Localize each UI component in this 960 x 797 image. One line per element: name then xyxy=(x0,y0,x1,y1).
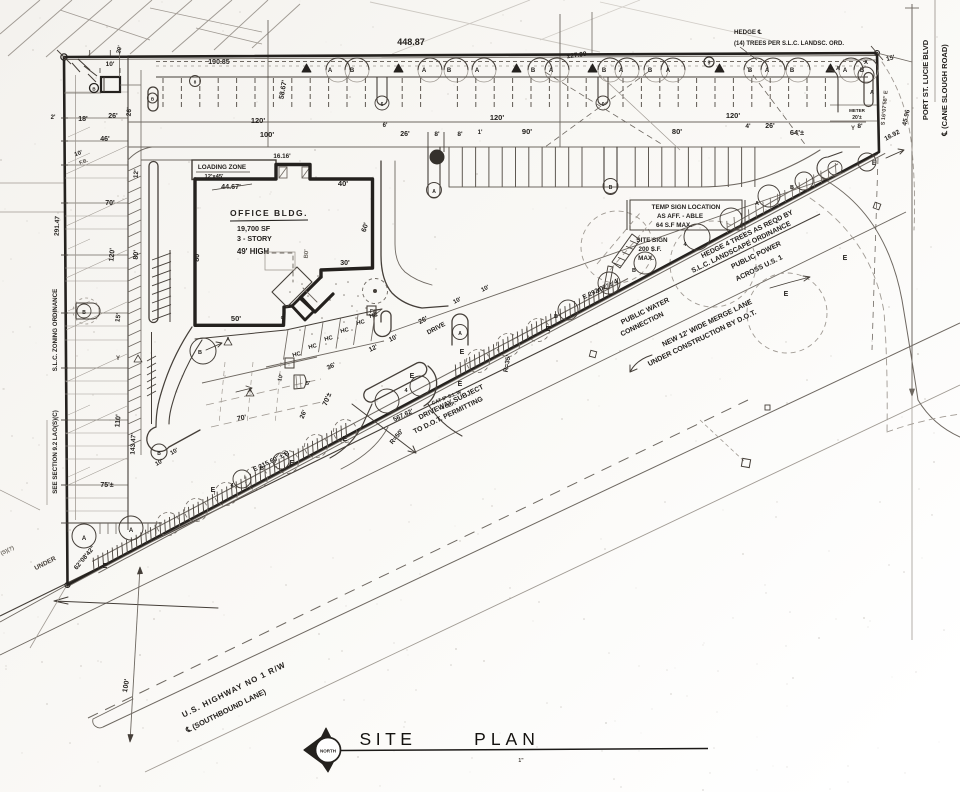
svg-text:B: B xyxy=(157,451,161,457)
svg-text:70': 70' xyxy=(105,200,115,207)
svg-text:MAX.: MAX. xyxy=(638,255,654,262)
svg-text:B: B xyxy=(632,268,636,274)
svg-text:HEDGE ℄: HEDGE ℄ xyxy=(734,29,762,36)
svg-text:1": 1" xyxy=(518,758,524,764)
svg-text:B: B xyxy=(790,68,795,74)
svg-text:18': 18' xyxy=(78,116,88,123)
svg-text:291.47: 291.47 xyxy=(54,216,62,236)
svg-text:E: E xyxy=(460,349,465,356)
svg-text:A: A xyxy=(666,68,671,74)
svg-text:20'±: 20'± xyxy=(852,115,862,121)
svg-text:E: E xyxy=(343,436,348,443)
svg-text:A: A xyxy=(475,68,480,74)
svg-text:E: E xyxy=(843,255,848,262)
svg-text:16.16': 16.16' xyxy=(273,153,291,160)
svg-text:8': 8' xyxy=(434,131,440,138)
svg-text:6': 6' xyxy=(383,123,388,129)
svg-text:AS AFF. - ABLE: AS AFF. - ABLE xyxy=(657,213,703,220)
svg-text:A: A xyxy=(870,90,874,96)
svg-text:B: B xyxy=(82,310,86,316)
svg-text:46': 46' xyxy=(100,136,110,143)
svg-text:A: A xyxy=(432,189,436,195)
svg-text:3 - STORY: 3 - STORY xyxy=(237,234,272,243)
svg-text:SEE SECTION 9.2 LAO(S)(C): SEE SECTION 9.2 LAO(S)(C) xyxy=(52,410,59,494)
svg-text:9: 9 xyxy=(708,61,711,67)
svg-text:OFFICE BLDG.: OFFICE BLDG. xyxy=(230,208,308,218)
svg-text:26': 26' xyxy=(108,113,118,120)
svg-text:8': 8' xyxy=(857,123,863,130)
svg-text:80': 80' xyxy=(672,127,682,136)
svg-text:1': 1' xyxy=(478,130,483,136)
svg-text:26': 26' xyxy=(126,107,134,117)
svg-text:B: B xyxy=(554,314,558,320)
svg-text:B: B xyxy=(350,68,355,74)
svg-text:SITE SIGN: SITE SIGN xyxy=(636,237,668,244)
svg-text:26': 26' xyxy=(400,131,410,138)
svg-text:12': 12' xyxy=(133,169,141,179)
svg-text:64'±: 64'± xyxy=(790,128,804,137)
svg-text:B: B xyxy=(609,185,613,191)
svg-text:B: B xyxy=(447,68,452,74)
svg-text:120': 120' xyxy=(108,248,116,262)
svg-text:A: A xyxy=(82,536,87,542)
svg-text:E: E xyxy=(211,487,216,494)
svg-text:8': 8' xyxy=(457,131,463,138)
svg-text:64 S.F MAX.: 64 S.F MAX. xyxy=(656,222,692,229)
svg-text:E: E xyxy=(458,381,463,388)
svg-text:2': 2' xyxy=(51,115,56,121)
svg-text:E: E xyxy=(290,460,295,467)
svg-text:100': 100' xyxy=(260,130,275,139)
svg-text:44.67': 44.67' xyxy=(221,182,241,191)
svg-text:10': 10' xyxy=(106,61,115,68)
svg-text:A: A xyxy=(328,68,333,74)
svg-text:19,700 SF: 19,700 SF xyxy=(237,224,271,233)
svg-text:80': 80' xyxy=(194,252,202,262)
svg-text:(14) TREES PER S.L.C. LANDS: (14) TREES PER S.L.C. LANDSC. ORD. xyxy=(734,41,844,47)
svg-text:Y: Y xyxy=(116,356,120,362)
svg-text:A: A xyxy=(129,528,134,534)
svg-text:75'±: 75'± xyxy=(100,482,113,489)
svg-text:200 S.F.: 200 S.F. xyxy=(638,246,661,253)
svg-text:B: B xyxy=(531,68,536,74)
svg-text:50': 50' xyxy=(231,314,241,323)
svg-text:X: X xyxy=(864,60,868,66)
svg-text:A: A xyxy=(765,68,770,74)
svg-text:30': 30' xyxy=(340,260,350,267)
svg-text:190.85: 190.85 xyxy=(208,59,230,66)
svg-text:TEMP SIGN LOCATION: TEMP SIGN LOCATION xyxy=(652,204,721,211)
svg-text:120': 120' xyxy=(251,116,266,125)
svg-text:A: A xyxy=(619,68,624,74)
svg-text:S.L.C. ZONING ORDINANCE: S.L.C. ZONING ORDINANCE xyxy=(52,289,59,372)
svg-text:Y: Y xyxy=(851,126,855,132)
svg-text:PORT ST. LUCIE BLVD: PORT ST. LUCIE BLVD xyxy=(921,39,930,120)
svg-text:B: B xyxy=(648,68,653,74)
svg-text:E: E xyxy=(410,373,415,380)
svg-text:A: A xyxy=(458,331,462,337)
svg-text:PLAN: PLAN xyxy=(474,729,540,749)
svg-text:METER: METER xyxy=(849,108,866,113)
svg-text:A: A xyxy=(836,66,840,72)
svg-text:B: B xyxy=(790,185,794,191)
svg-text:B0': B0' xyxy=(304,249,310,259)
svg-text:6: 6 xyxy=(381,102,384,108)
svg-text:A: A xyxy=(549,68,554,74)
svg-text:NORTH: NORTH xyxy=(320,749,336,754)
svg-text:40': 40' xyxy=(338,179,348,188)
svg-text:80': 80' xyxy=(133,250,141,260)
svg-text:SITE: SITE xyxy=(360,729,417,749)
svg-text:120': 120' xyxy=(490,113,505,122)
svg-text:LOADING ZONE: LOADING ZONE xyxy=(198,164,246,171)
svg-text:℄ (CANE SLOUGH ROAD): ℄ (CANE SLOUGH ROAD) xyxy=(940,44,949,137)
svg-text:90': 90' xyxy=(522,127,532,136)
svg-text:A: A xyxy=(755,201,759,207)
svg-text:143.47': 143.47' xyxy=(129,433,137,455)
svg-text:B: B xyxy=(198,350,202,356)
svg-text:A: A xyxy=(422,68,427,74)
svg-text:26': 26' xyxy=(765,123,775,130)
svg-text:B: B xyxy=(602,68,607,74)
svg-text:5': 5' xyxy=(306,381,311,387)
svg-text:E: E xyxy=(546,326,551,333)
svg-text:E: E xyxy=(784,291,789,298)
svg-text:A: A xyxy=(843,68,848,74)
svg-text:110': 110' xyxy=(114,414,122,428)
svg-text:120': 120' xyxy=(726,111,741,120)
svg-text:4': 4' xyxy=(745,123,751,130)
svg-text:E: E xyxy=(103,563,108,570)
svg-text:448.87: 448.87 xyxy=(397,37,425,47)
